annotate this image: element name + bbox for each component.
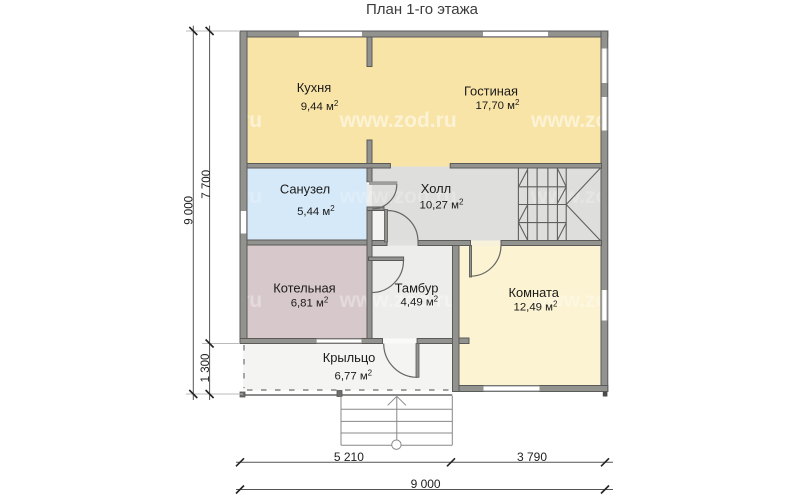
svg-text:9 000: 9 000: [183, 196, 195, 225]
svg-text:Кухня: Кухня: [297, 80, 332, 95]
svg-text:3 790: 3 790: [517, 450, 547, 464]
svg-text:9,44 м2: 9,44 м2: [301, 99, 339, 113]
svg-text:6,77 м2: 6,77 м2: [334, 369, 372, 383]
svg-text:6,81 м2: 6,81 м2: [291, 295, 329, 309]
svg-text:Санузел: Санузел: [280, 181, 330, 196]
svg-text:12,49 м2: 12,49 м2: [514, 300, 559, 314]
svg-text:1 300: 1 300: [200, 354, 212, 383]
svg-text:17,70 м2: 17,70 м2: [476, 98, 521, 112]
svg-text:5,44 м2: 5,44 м2: [297, 204, 335, 218]
svg-text:Холл: Холл: [421, 181, 451, 196]
svg-text:www.zod.ru: www.zod.ru: [530, 109, 648, 132]
svg-text:4,49 м2: 4,49 м2: [400, 294, 438, 308]
svg-text:Тамбур: Тамбур: [395, 280, 439, 295]
svg-text:7 700: 7 700: [201, 170, 213, 199]
svg-text:Комната: Комната: [508, 285, 559, 300]
svg-text:9 000: 9 000: [411, 477, 441, 491]
svg-text:www.zod.ru: www.zod.ru: [339, 109, 457, 132]
svg-text:5 210: 5 210: [334, 450, 364, 464]
svg-text:Гостиная: Гостиная: [464, 83, 518, 98]
svg-text:Котельная: Котельная: [273, 281, 335, 296]
svg-text:10,27 м2: 10,27 м2: [420, 198, 465, 212]
svg-text:Крыльцо: Крыльцо: [323, 350, 376, 365]
svg-text:План 1-го этажа: План 1-го этажа: [366, 1, 479, 18]
